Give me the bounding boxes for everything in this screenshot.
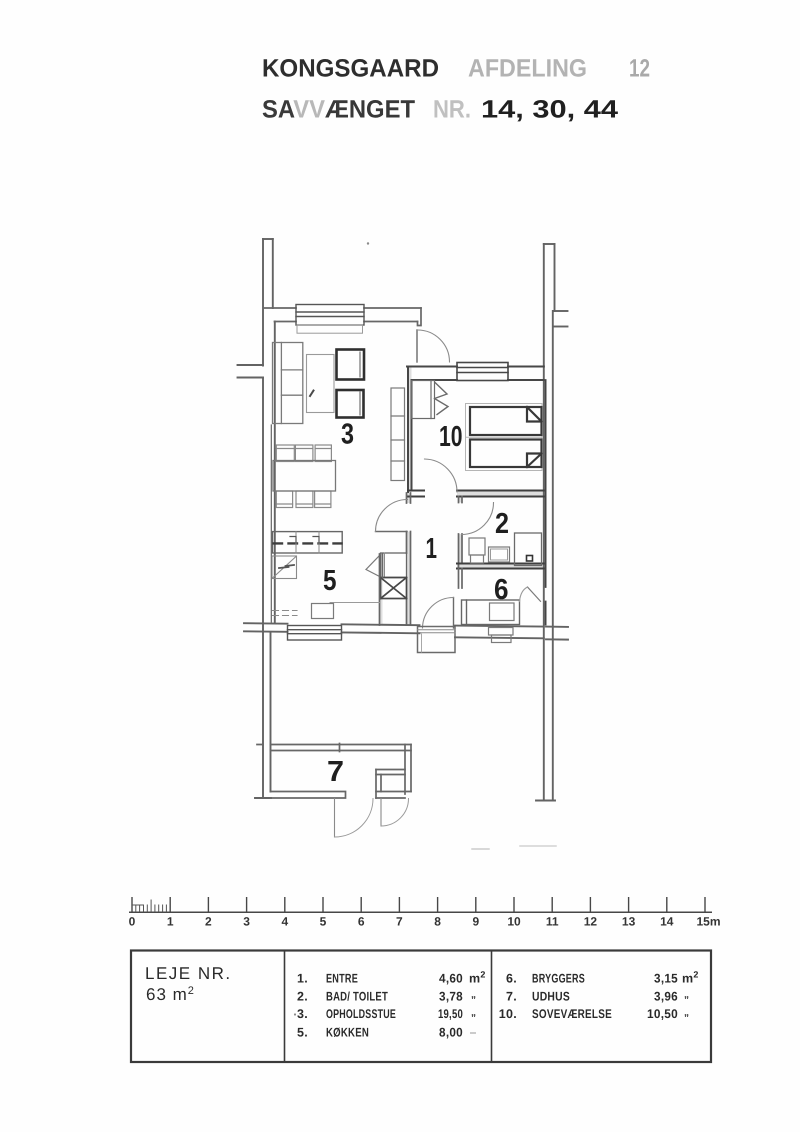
svg-text:13: 13 [622, 915, 636, 929]
svg-text:15m: 15m [696, 915, 720, 929]
svg-text:ENTRE: ENTRE [326, 972, 358, 986]
svg-text:6: 6 [358, 915, 365, 929]
svg-text:2: 2 [205, 915, 212, 929]
svg-text:0: 0 [129, 915, 136, 929]
svg-text:12: 12 [584, 915, 598, 929]
svg-text:3: 3 [243, 915, 250, 929]
svg-text:m2: m2 [682, 970, 699, 986]
svg-text:BRYGGERS: BRYGGERS [532, 972, 585, 986]
svg-text:5: 5 [323, 565, 337, 597]
svg-text:KONGSGAARD: KONGSGAARD [262, 55, 439, 83]
svg-text:11: 11 [546, 915, 559, 929]
svg-text:12: 12 [629, 55, 650, 83]
svg-text:2.: 2. [297, 989, 308, 1003]
svg-text:14: 14 [660, 915, 674, 929]
svg-text:AFDELING: AFDELING [468, 55, 587, 83]
svg-text:OPHOLDSSTUE: OPHOLDSSTUE [326, 1007, 396, 1021]
svg-text:2: 2 [495, 508, 509, 540]
svg-text:BAD/ TOILET: BAD/ TOILET [326, 989, 388, 1003]
svg-text:8: 8 [434, 915, 441, 929]
svg-text:6: 6 [494, 574, 509, 606]
svg-text:3: 3 [341, 419, 354, 451]
svg-text:10: 10 [507, 915, 521, 929]
svg-text:UDHUS: UDHUS [532, 989, 570, 1003]
svg-text:8,00: 8,00 [439, 1026, 463, 1040]
svg-text:„: „ [684, 1008, 689, 1019]
svg-text:10: 10 [439, 421, 463, 453]
svg-text:SOVEVÆRELSE: SOVEVÆRELSE [532, 1007, 612, 1021]
svg-text:3.: 3. [297, 1007, 308, 1021]
svg-text:10.: 10. [499, 1007, 517, 1021]
svg-text:„: „ [471, 1008, 476, 1019]
svg-text:4: 4 [281, 915, 288, 929]
svg-text:1.: 1. [297, 972, 308, 986]
svg-text:NR.: NR. [433, 96, 471, 124]
svg-text:1: 1 [167, 915, 174, 929]
svg-text:7.: 7. [506, 989, 517, 1003]
svg-text:14, 30, 44: 14, 30, 44 [481, 96, 618, 124]
svg-text:LEJE NR.: LEJE NR. [145, 964, 232, 983]
svg-text:19,50: 19,50 [438, 1007, 463, 1021]
svg-text:3,78: 3,78 [439, 989, 463, 1003]
svg-text:63 m2: 63 m2 [146, 985, 195, 1004]
svg-text:5.: 5. [297, 1026, 308, 1040]
svg-text:3,15: 3,15 [654, 972, 678, 986]
svg-text:10,50: 10,50 [647, 1007, 678, 1021]
svg-text:9: 9 [472, 915, 479, 929]
svg-text:4,60: 4,60 [439, 972, 463, 986]
svg-text:3,96: 3,96 [654, 989, 678, 1003]
svg-text:„: „ [471, 990, 476, 1001]
svg-text:„: „ [684, 990, 689, 1001]
svg-text:6.: 6. [506, 972, 517, 986]
svg-text:5: 5 [320, 915, 327, 929]
svg-text:SAVVÆNGET: SAVVÆNGET [262, 96, 415, 124]
svg-text:7: 7 [396, 915, 403, 929]
svg-text:1: 1 [426, 533, 438, 565]
svg-text:m2: m2 [469, 970, 486, 986]
svg-text:KØKKEN: KØKKEN [326, 1026, 369, 1040]
svg-text:7: 7 [327, 756, 344, 788]
